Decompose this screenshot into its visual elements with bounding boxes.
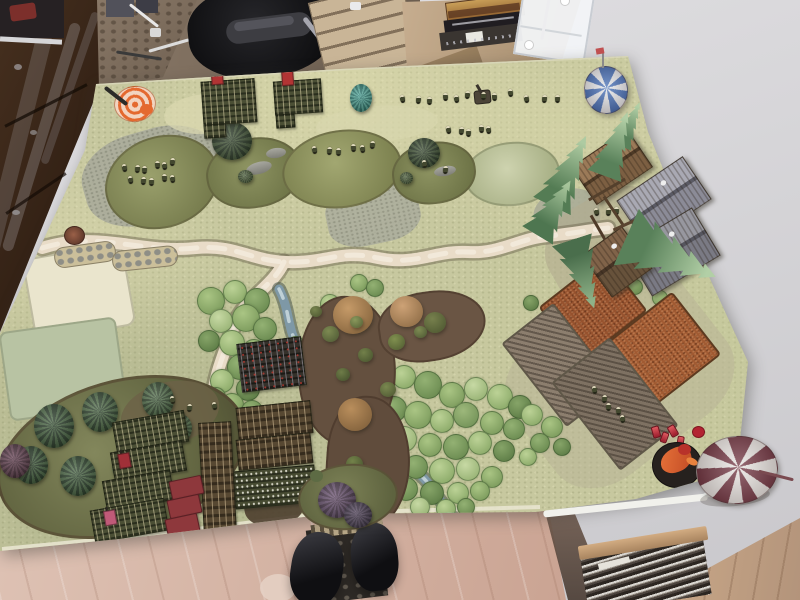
roof-marking	[610, 242, 618, 250]
purple-tree	[344, 502, 372, 528]
bush	[310, 470, 323, 482]
tent-flag-pole	[602, 52, 604, 68]
roof-marking	[660, 179, 668, 187]
mat-curled-edge	[543, 493, 708, 517]
tabletop-wargame-photo	[0, 0, 800, 600]
overhanging-terrain	[0, 0, 800, 600]
ruined-wall	[590, 215, 607, 241]
camp-tent-blue	[581, 63, 631, 117]
roof-marking	[668, 230, 676, 237]
